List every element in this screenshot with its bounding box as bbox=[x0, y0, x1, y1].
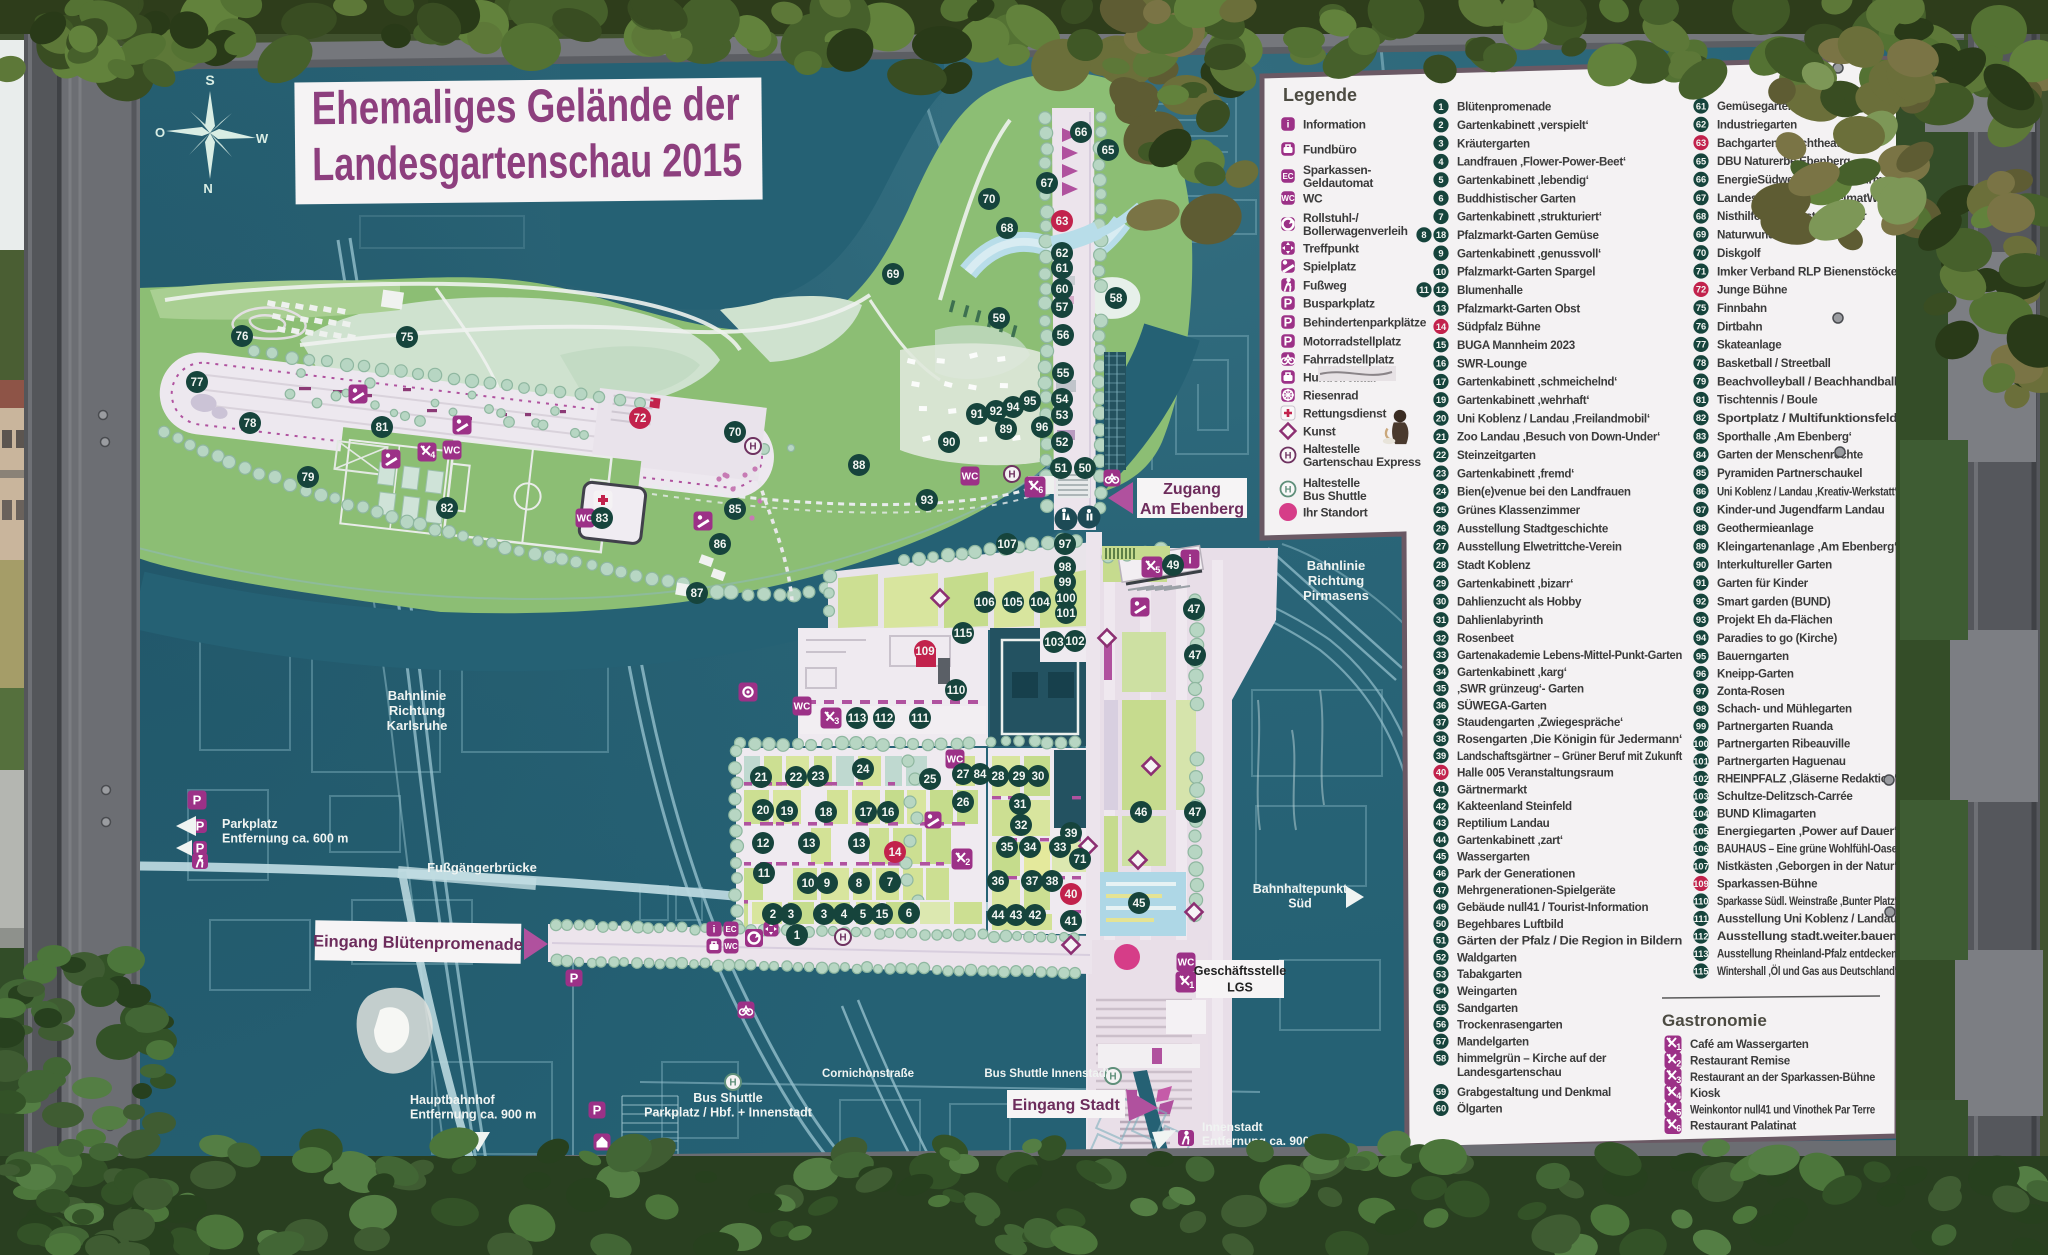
svg-text:97: 97 bbox=[1059, 539, 1072, 551]
svg-text:3: 3 bbox=[788, 909, 794, 921]
svg-text:Bien(e)venue bei den Landfraue: Bien(e)venue bei den Landfrauen bbox=[1457, 486, 1631, 499]
svg-text:Dirtbahn: Dirtbahn bbox=[1717, 320, 1762, 333]
svg-text:Eingang Blütenpromenade: Eingang Blütenpromenade bbox=[313, 932, 523, 954]
svg-text:WC: WC bbox=[724, 942, 738, 951]
svg-text:WC: WC bbox=[1281, 194, 1295, 203]
svg-text:P: P bbox=[593, 1103, 602, 1118]
svg-text:Bauerngarten: Bauerngarten bbox=[1717, 650, 1789, 663]
svg-text:Restaurant an der Sparkassen-B: Restaurant an der Sparkassen-Bühne bbox=[1690, 1071, 1876, 1084]
svg-text:78: 78 bbox=[1696, 358, 1706, 368]
svg-text:3: 3 bbox=[1676, 1075, 1681, 1085]
svg-text:Rollstuhl-/: Rollstuhl-/ bbox=[1303, 211, 1359, 225]
svg-text:89: 89 bbox=[1696, 541, 1706, 551]
svg-text:19: 19 bbox=[781, 806, 794, 818]
svg-text:Schach- und Mühlegarten: Schach- und Mühlegarten bbox=[1717, 703, 1852, 716]
svg-text:47: 47 bbox=[1436, 885, 1446, 895]
svg-text:Gartenkabinett ‚schmeichelnd‘: Gartenkabinett ‚schmeichelnd‘ bbox=[1457, 376, 1617, 389]
svg-text:P: P bbox=[1284, 315, 1293, 330]
svg-text:113: 113 bbox=[848, 713, 867, 725]
svg-text:BAUHAUS – Eine grüne Wohlfühl-: BAUHAUS – Eine grüne Wohlfühl-Oase bbox=[1717, 843, 1898, 856]
svg-text:4: 4 bbox=[1676, 1091, 1681, 1101]
svg-text:Restaurant Remise: Restaurant Remise bbox=[1690, 1055, 1791, 1068]
svg-text:79: 79 bbox=[302, 472, 315, 484]
svg-text:11: 11 bbox=[1419, 285, 1429, 295]
svg-text:Ölgarten: Ölgarten bbox=[1457, 1103, 1502, 1116]
svg-text:28: 28 bbox=[992, 771, 1005, 783]
svg-text:Basketball / Streetball: Basketball / Streetball bbox=[1717, 357, 1831, 370]
svg-text:106: 106 bbox=[1693, 844, 1709, 854]
svg-text:81: 81 bbox=[376, 422, 389, 434]
svg-text:Eingang Stadt: Eingang Stadt bbox=[1012, 1097, 1120, 1114]
svg-text:92: 92 bbox=[990, 406, 1003, 418]
svg-text:58: 58 bbox=[1110, 293, 1123, 305]
svg-text:SÜWEGA-Garten: SÜWEGA-Garten bbox=[1457, 699, 1547, 712]
svg-text:72: 72 bbox=[1696, 285, 1706, 295]
svg-text:40: 40 bbox=[1065, 889, 1078, 901]
svg-text:4: 4 bbox=[430, 450, 435, 460]
svg-text:47: 47 bbox=[1188, 604, 1201, 616]
svg-text:Nistkästen ‚Geborgen in der Na: Nistkästen ‚Geborgen in der Natur‘ bbox=[1717, 860, 1897, 873]
svg-text:6: 6 bbox=[1676, 1124, 1681, 1134]
svg-text:21: 21 bbox=[755, 772, 768, 784]
svg-text:Steinzeitgarten: Steinzeitgarten bbox=[1457, 449, 1536, 462]
svg-text:Sportplatz / Multifunktionsfel: Sportplatz / Multifunktionsfeld bbox=[1717, 412, 1897, 425]
svg-text:Staudengarten ‚Zwiegespräche‘: Staudengarten ‚Zwiegespräche‘ bbox=[1457, 716, 1623, 729]
svg-text:‚SWR grünzeug‘- Garten: ‚SWR grünzeug‘- Garten bbox=[1457, 683, 1584, 696]
svg-text:54: 54 bbox=[1436, 986, 1447, 996]
svg-text:Landesgartenschau: Landesgartenschau bbox=[1457, 1066, 1562, 1079]
svg-text:Mandelgarten: Mandelgarten bbox=[1457, 1035, 1529, 1048]
svg-text:61: 61 bbox=[1056, 263, 1069, 275]
svg-text:i: i bbox=[1188, 552, 1191, 566]
svg-text:17: 17 bbox=[1436, 377, 1446, 387]
svg-text:24: 24 bbox=[857, 764, 870, 776]
svg-text:91: 91 bbox=[971, 409, 984, 421]
svg-text:99: 99 bbox=[1696, 721, 1706, 731]
svg-text:himmelgrün – Kirche auf der: himmelgrün – Kirche auf der bbox=[1457, 1052, 1607, 1065]
svg-text:98: 98 bbox=[1696, 704, 1706, 714]
svg-text:Kinder-und Jugendfarm Landau: Kinder-und Jugendfarm Landau bbox=[1717, 504, 1885, 517]
svg-text:95: 95 bbox=[1696, 651, 1706, 661]
svg-text:88: 88 bbox=[853, 460, 866, 472]
svg-text:44: 44 bbox=[992, 910, 1005, 922]
svg-text:93: 93 bbox=[1696, 615, 1706, 625]
svg-text:Kleingartenanlage ‚Am Ebenberg: Kleingartenanlage ‚Am Ebenberg‘ bbox=[1717, 540, 1897, 553]
svg-text:6: 6 bbox=[1438, 193, 1443, 203]
svg-text:100: 100 bbox=[1693, 739, 1709, 749]
svg-text:103: 103 bbox=[1044, 637, 1063, 649]
svg-text:Weinkontor null41 und Vinothek: Weinkontor null41 und Vinothek Par Terre bbox=[1690, 1103, 1876, 1116]
svg-text:43: 43 bbox=[1010, 910, 1023, 922]
svg-text:41: 41 bbox=[1065, 916, 1078, 928]
svg-text:6: 6 bbox=[1038, 485, 1043, 495]
svg-text:105: 105 bbox=[1003, 597, 1023, 609]
svg-text:Blumenhalle: Blumenhalle bbox=[1457, 284, 1523, 297]
svg-text:83: 83 bbox=[596, 513, 609, 525]
svg-text:H: H bbox=[1008, 470, 1015, 481]
svg-text:96: 96 bbox=[1036, 422, 1049, 434]
svg-text:78: 78 bbox=[244, 418, 257, 430]
svg-text:36: 36 bbox=[1436, 701, 1446, 711]
svg-text:93: 93 bbox=[921, 495, 934, 507]
svg-text:Zoo Landau ‚Besuch von Down-Un: Zoo Landau ‚Besuch von Down-Under‘ bbox=[1457, 431, 1660, 444]
svg-text:13: 13 bbox=[803, 838, 816, 850]
svg-text:11: 11 bbox=[758, 868, 771, 880]
svg-text:1: 1 bbox=[1676, 1042, 1681, 1052]
svg-text:EC: EC bbox=[1282, 172, 1293, 181]
svg-text:BahnlinieRichtungKarlsruhe: BahnlinieRichtungKarlsruhe bbox=[387, 688, 448, 733]
svg-text:Energiegarten ‚Power auf Dauer: Energiegarten ‚Power auf Dauer‘ bbox=[1717, 825, 1897, 838]
svg-text:28: 28 bbox=[1436, 560, 1446, 570]
svg-text:Schultze-Delitzsch-Carrée: Schultze-Delitzsch-Carrée bbox=[1717, 790, 1853, 803]
svg-text:2: 2 bbox=[965, 857, 970, 867]
svg-text:45: 45 bbox=[1436, 852, 1446, 862]
svg-text:Ausstellung stadt.weiter.bauen: Ausstellung stadt.weiter.bauen bbox=[1717, 930, 1897, 943]
svg-text:9: 9 bbox=[1438, 248, 1443, 258]
svg-text:82: 82 bbox=[1696, 413, 1706, 423]
svg-text:Gartenkabinett ‚verspielt‘: Gartenkabinett ‚verspielt‘ bbox=[1457, 119, 1588, 132]
svg-text:BahnlinieRichtungPirmasens: BahnlinieRichtungPirmasens bbox=[1303, 558, 1369, 603]
svg-text:86: 86 bbox=[714, 539, 727, 551]
svg-text:Gebäude null41 / Tourist-Infor: Gebäude null41 / Tourist-Information bbox=[1457, 901, 1648, 914]
svg-text:17: 17 bbox=[860, 807, 873, 819]
svg-text:Blütenpromenade: Blütenpromenade bbox=[1457, 101, 1552, 114]
svg-text:Kräutergarten: Kräutergarten bbox=[1457, 137, 1530, 150]
svg-text:10: 10 bbox=[1436, 267, 1446, 277]
svg-text:66: 66 bbox=[1696, 175, 1706, 185]
svg-text:49: 49 bbox=[1436, 902, 1446, 912]
svg-text:101: 101 bbox=[1056, 608, 1076, 620]
svg-text:70: 70 bbox=[983, 194, 996, 206]
svg-text:Park der Generationen: Park der Generationen bbox=[1457, 867, 1575, 880]
svg-text:Fundbüro: Fundbüro bbox=[1303, 142, 1357, 156]
svg-text:42: 42 bbox=[1436, 801, 1446, 811]
svg-text:109: 109 bbox=[915, 646, 934, 658]
svg-text:Interkultureller Garten: Interkultureller Garten bbox=[1717, 559, 1832, 572]
svg-text:5: 5 bbox=[860, 909, 867, 921]
svg-text:P: P bbox=[196, 841, 205, 856]
svg-text:29: 29 bbox=[1013, 771, 1026, 783]
svg-text:Gartenkabinett ‚lebendig‘: Gartenkabinett ‚lebendig‘ bbox=[1457, 174, 1589, 187]
svg-text:42: 42 bbox=[1029, 910, 1042, 922]
svg-text:89: 89 bbox=[1000, 424, 1013, 436]
svg-text:75: 75 bbox=[1696, 303, 1706, 313]
svg-text:Gastronomie: Gastronomie bbox=[1662, 1011, 1767, 1030]
svg-text:Finnbahn: Finnbahn bbox=[1717, 302, 1767, 315]
svg-text:29: 29 bbox=[1436, 578, 1446, 588]
svg-text:15: 15 bbox=[1436, 340, 1446, 350]
svg-text:22: 22 bbox=[790, 772, 803, 784]
svg-text:5: 5 bbox=[1155, 565, 1160, 575]
svg-text:56: 56 bbox=[1057, 330, 1070, 342]
svg-text:65: 65 bbox=[1696, 156, 1706, 166]
svg-text:63: 63 bbox=[1056, 216, 1069, 228]
svg-text:Garten für Kinder: Garten für Kinder bbox=[1717, 577, 1809, 590]
svg-text:Ihr Standort: Ihr Standort bbox=[1303, 505, 1368, 519]
svg-text:57: 57 bbox=[1056, 302, 1069, 314]
svg-text:18: 18 bbox=[820, 807, 833, 819]
svg-text:Fahrradstellplatz: Fahrradstellplatz bbox=[1303, 352, 1394, 366]
svg-text:Tischtennis / Boule: Tischtennis / Boule bbox=[1717, 394, 1818, 407]
svg-text:34: 34 bbox=[1024, 842, 1037, 854]
svg-text:WC: WC bbox=[444, 446, 461, 457]
svg-text:12: 12 bbox=[1436, 285, 1446, 295]
svg-text:77: 77 bbox=[1696, 340, 1706, 350]
svg-text:Bus Shuttle Innenstadt: Bus Shuttle Innenstadt bbox=[984, 1068, 1109, 1080]
svg-text:14: 14 bbox=[1436, 322, 1447, 332]
svg-text:Ausstellung Elwetrittche-Verei: Ausstellung Elwetrittche-Verein bbox=[1457, 541, 1622, 554]
svg-text:P: P bbox=[196, 819, 205, 834]
svg-text:79: 79 bbox=[1696, 376, 1706, 386]
svg-text:Café am Wassergarten: Café am Wassergarten bbox=[1690, 1038, 1809, 1051]
svg-text:Skateanlage: Skateanlage bbox=[1717, 339, 1782, 352]
svg-text:32: 32 bbox=[1015, 820, 1028, 832]
svg-text:59: 59 bbox=[1436, 1087, 1446, 1097]
svg-text:WC: WC bbox=[1178, 958, 1195, 969]
svg-text:Ehemaliges Gelände der: Ehemaliges Gelände der bbox=[311, 77, 740, 134]
svg-text:7: 7 bbox=[1438, 212, 1443, 222]
svg-text:109: 109 bbox=[1693, 879, 1709, 889]
svg-text:111: 111 bbox=[911, 713, 930, 725]
svg-text:Uni Koblenz / Landau ‚Kreativ-: Uni Koblenz / Landau ‚Kreativ-Werkstatt‘ bbox=[1717, 485, 1897, 498]
svg-text:Treffpunkt: Treffpunkt bbox=[1303, 241, 1359, 255]
svg-text:86: 86 bbox=[1696, 486, 1706, 496]
svg-text:107: 107 bbox=[1693, 861, 1709, 871]
svg-text:Halle 005 Veranstaltungsraum: Halle 005 Veranstaltungsraum bbox=[1457, 767, 1614, 780]
svg-text:113: 113 bbox=[1694, 949, 1709, 959]
svg-text:Cornichonstraße: Cornichonstraße bbox=[822, 1068, 914, 1080]
svg-text:66: 66 bbox=[1075, 127, 1088, 139]
svg-text:Begehbares Luftbild: Begehbares Luftbild bbox=[1457, 918, 1564, 931]
svg-text:41: 41 bbox=[1436, 785, 1446, 795]
svg-text:67: 67 bbox=[1041, 178, 1054, 190]
svg-text:70: 70 bbox=[1696, 248, 1706, 258]
svg-text:i: i bbox=[1287, 120, 1290, 131]
svg-text:Imker Verband RLP Bienenstöcke: Imker Verband RLP Bienenstöcke bbox=[1717, 265, 1898, 278]
svg-text:25: 25 bbox=[1436, 505, 1446, 515]
svg-text:1: 1 bbox=[1189, 980, 1194, 990]
svg-text:107: 107 bbox=[997, 539, 1016, 551]
svg-text:72: 72 bbox=[634, 413, 647, 425]
svg-text:Fußgängerbrücke: Fußgängerbrücke bbox=[427, 860, 537, 875]
svg-text:2: 2 bbox=[1676, 1059, 1681, 1069]
svg-text:47: 47 bbox=[1189, 807, 1202, 819]
svg-text:Zonta-Rosen: Zonta-Rosen bbox=[1717, 685, 1785, 698]
svg-text:27: 27 bbox=[1436, 542, 1446, 552]
svg-text:Kneipp-Garten: Kneipp-Garten bbox=[1717, 668, 1794, 681]
svg-text:46: 46 bbox=[1135, 807, 1148, 819]
svg-text:Rosenbeet: Rosenbeet bbox=[1457, 632, 1514, 645]
svg-text:24: 24 bbox=[1436, 487, 1447, 497]
svg-text:63: 63 bbox=[1696, 138, 1706, 148]
svg-text:33: 33 bbox=[1436, 650, 1446, 660]
svg-text:53: 53 bbox=[1056, 410, 1069, 422]
svg-text:102: 102 bbox=[1065, 636, 1084, 648]
svg-text:WC: WC bbox=[1303, 191, 1323, 205]
svg-text:47: 47 bbox=[1189, 650, 1202, 662]
svg-text:N: N bbox=[203, 181, 212, 196]
svg-text:38: 38 bbox=[1046, 876, 1059, 888]
svg-text:57: 57 bbox=[1436, 1037, 1446, 1047]
svg-text:Legende: Legende bbox=[1283, 85, 1357, 105]
svg-text:Gartenkabinett ‚wehrhaft‘: Gartenkabinett ‚wehrhaft‘ bbox=[1457, 394, 1589, 407]
svg-text:69: 69 bbox=[887, 269, 900, 281]
svg-text:Diskgolf: Diskgolf bbox=[1717, 247, 1761, 260]
svg-text:5: 5 bbox=[1676, 1107, 1681, 1117]
svg-text:32: 32 bbox=[1436, 633, 1446, 643]
svg-text:31: 31 bbox=[1014, 799, 1027, 811]
svg-text:Motorradstellplatz: Motorradstellplatz bbox=[1303, 334, 1401, 348]
svg-text:7: 7 bbox=[887, 877, 893, 889]
svg-text:Behindertenparkplätze: Behindertenparkplätze bbox=[1303, 315, 1427, 329]
svg-text:Gartenkabinett ‚genussvoll‘: Gartenkabinett ‚genussvoll‘ bbox=[1457, 247, 1601, 260]
svg-text:26: 26 bbox=[1436, 523, 1446, 533]
svg-text:SWR-Lounge: SWR-Lounge bbox=[1457, 357, 1528, 370]
svg-text:15: 15 bbox=[876, 909, 889, 921]
svg-text:Sparkassen-: Sparkassen- bbox=[1303, 163, 1371, 177]
svg-text:8: 8 bbox=[856, 878, 863, 890]
svg-text:101: 101 bbox=[1693, 756, 1709, 766]
svg-text:23: 23 bbox=[812, 771, 825, 783]
svg-text:36: 36 bbox=[992, 876, 1005, 888]
svg-text:88: 88 bbox=[1696, 523, 1706, 533]
svg-text:31: 31 bbox=[1436, 615, 1446, 625]
svg-text:WC: WC bbox=[794, 702, 811, 713]
svg-text:Smart garden (BUND): Smart garden (BUND) bbox=[1717, 595, 1831, 608]
svg-text:27: 27 bbox=[957, 769, 970, 781]
svg-text:52: 52 bbox=[1056, 437, 1069, 449]
svg-text:104: 104 bbox=[1030, 597, 1050, 609]
svg-text:16: 16 bbox=[882, 807, 895, 819]
svg-text:Information: Information bbox=[1303, 117, 1366, 131]
svg-text:Wintershall ‚Öl und Gas aus De: Wintershall ‚Öl und Gas aus Deutschland‘ bbox=[1717, 965, 1897, 978]
svg-text:Geothermieanlage: Geothermieanlage bbox=[1717, 522, 1814, 535]
svg-text:Rettungsdienst: Rettungsdienst bbox=[1303, 406, 1386, 420]
svg-text:30: 30 bbox=[1436, 597, 1446, 607]
svg-text:43: 43 bbox=[1436, 818, 1446, 828]
svg-text:Sporthalle ‚Am Ebenberg‘: Sporthalle ‚Am Ebenberg‘ bbox=[1717, 430, 1852, 443]
svg-text:Bollerwagenverleih: Bollerwagenverleih bbox=[1303, 224, 1408, 238]
svg-text:75: 75 bbox=[401, 332, 414, 344]
svg-text:Busparkplatz: Busparkplatz bbox=[1303, 296, 1375, 310]
svg-text:39: 39 bbox=[1065, 828, 1078, 840]
svg-text:61: 61 bbox=[1696, 101, 1706, 111]
svg-text:Pyramiden Partnerschaukel: Pyramiden Partnerschaukel bbox=[1717, 467, 1862, 480]
svg-text:2: 2 bbox=[1438, 120, 1443, 130]
svg-text:23: 23 bbox=[1436, 468, 1446, 478]
svg-text:Landesgartenschau 2015: Landesgartenschau 2015 bbox=[312, 133, 743, 190]
svg-text:WC: WC bbox=[577, 514, 594, 525]
svg-text:WC: WC bbox=[962, 472, 979, 483]
svg-text:Sparkassen-Bühne: Sparkassen-Bühne bbox=[1717, 878, 1818, 891]
svg-text:Dahlienzucht als Hobby: Dahlienzucht als Hobby bbox=[1457, 596, 1582, 609]
svg-text:Gartenkabinett ‚karg‘: Gartenkabinett ‚karg‘ bbox=[1457, 666, 1567, 679]
svg-text:Dahlienlabyrinth: Dahlienlabyrinth bbox=[1457, 614, 1543, 627]
svg-text:71: 71 bbox=[1696, 266, 1706, 276]
svg-text:Südpfalz Bühne: Südpfalz Bühne bbox=[1457, 321, 1541, 334]
svg-text:71: 71 bbox=[1074, 854, 1087, 866]
svg-text:115: 115 bbox=[1694, 966, 1709, 976]
svg-text:H: H bbox=[1285, 484, 1292, 495]
svg-text:68: 68 bbox=[1001, 223, 1014, 235]
svg-text:Waldgarten: Waldgarten bbox=[1457, 951, 1517, 964]
svg-text:102: 102 bbox=[1693, 774, 1709, 784]
svg-text:92: 92 bbox=[1696, 596, 1706, 606]
svg-text:96: 96 bbox=[1696, 669, 1706, 679]
svg-text:46: 46 bbox=[1436, 869, 1446, 879]
svg-text:38: 38 bbox=[1436, 734, 1446, 744]
svg-text:Gartenkabinett ‚bizarr‘: Gartenkabinett ‚bizarr‘ bbox=[1457, 577, 1573, 590]
svg-text:3: 3 bbox=[1438, 138, 1443, 148]
svg-text:P: P bbox=[1284, 334, 1293, 349]
svg-text:76: 76 bbox=[1696, 321, 1706, 331]
svg-text:18: 18 bbox=[1436, 230, 1446, 240]
svg-text:110: 110 bbox=[947, 685, 966, 697]
svg-text:39: 39 bbox=[1436, 751, 1446, 761]
svg-text:Mehrgenerationen-Spielgeräte: Mehrgenerationen-Spielgeräte bbox=[1457, 884, 1616, 897]
svg-text:104: 104 bbox=[1693, 809, 1709, 819]
svg-text:20: 20 bbox=[757, 805, 770, 817]
svg-text:94: 94 bbox=[1007, 402, 1020, 414]
svg-text:51: 51 bbox=[1436, 936, 1446, 946]
svg-text:12: 12 bbox=[757, 838, 770, 850]
svg-text:Gartenschau Express: Gartenschau Express bbox=[1303, 455, 1421, 469]
svg-text:22: 22 bbox=[1436, 450, 1446, 460]
svg-text:5: 5 bbox=[1438, 175, 1443, 185]
svg-text:4: 4 bbox=[1438, 157, 1444, 167]
svg-text:105: 105 bbox=[1693, 826, 1709, 836]
svg-text:Partnergarten Ruanda: Partnergarten Ruanda bbox=[1717, 720, 1834, 733]
svg-text:56: 56 bbox=[1436, 1020, 1446, 1030]
svg-text:RHEINPFALZ ‚Gläserne Redaktion: RHEINPFALZ ‚Gläserne Redaktion‘ bbox=[1717, 773, 1897, 786]
svg-text:90: 90 bbox=[1696, 560, 1706, 570]
svg-text:97: 97 bbox=[1696, 686, 1706, 696]
svg-text:87: 87 bbox=[1696, 505, 1706, 515]
svg-text:i: i bbox=[713, 925, 716, 936]
svg-text:Pfalzmarkt-Garten Gemüse: Pfalzmarkt-Garten Gemüse bbox=[1457, 229, 1599, 242]
svg-text:45: 45 bbox=[1133, 898, 1146, 910]
svg-text:Kakteenland Steinfeld: Kakteenland Steinfeld bbox=[1457, 800, 1572, 813]
svg-text:Gärten der Pfalz / Die Region: Gärten der Pfalz / Die Region in Bildern bbox=[1457, 935, 1682, 948]
svg-text:Gartenkabinett ‚zart‘: Gartenkabinett ‚zart‘ bbox=[1457, 834, 1563, 847]
svg-text:H: H bbox=[729, 1078, 736, 1089]
svg-text:1: 1 bbox=[1438, 102, 1443, 112]
svg-text:4: 4 bbox=[841, 909, 848, 921]
svg-text:Ausstellung Stadtgeschichte: Ausstellung Stadtgeschichte bbox=[1457, 522, 1609, 535]
svg-text:34: 34 bbox=[1436, 667, 1447, 677]
svg-text:59: 59 bbox=[993, 313, 1006, 325]
svg-text:14: 14 bbox=[889, 847, 902, 859]
svg-text:10: 10 bbox=[802, 878, 815, 890]
svg-text:8: 8 bbox=[1421, 230, 1426, 240]
svg-text:90: 90 bbox=[943, 437, 956, 449]
svg-text:95: 95 bbox=[1024, 396, 1037, 408]
svg-text:BUND Klimagarten: BUND Klimagarten bbox=[1717, 808, 1816, 821]
svg-text:16: 16 bbox=[1436, 358, 1446, 368]
svg-text:Rosengarten ‚Die Königin für J: Rosengarten ‚Die Königin für Jedermann‘ bbox=[1457, 733, 1682, 746]
svg-text:20: 20 bbox=[1436, 413, 1446, 423]
svg-text:13: 13 bbox=[1436, 303, 1446, 313]
svg-text:106: 106 bbox=[975, 597, 994, 609]
svg-text:49: 49 bbox=[1167, 560, 1180, 572]
svg-text:52: 52 bbox=[1436, 953, 1446, 963]
svg-text:Industriegarten: Industriegarten bbox=[1717, 119, 1797, 132]
svg-text:Gartenkabinett ‚strukturiert‘: Gartenkabinett ‚strukturiert‘ bbox=[1457, 211, 1602, 224]
svg-text:112: 112 bbox=[875, 713, 894, 725]
svg-text:Reptilium Landau: Reptilium Landau bbox=[1457, 817, 1550, 830]
svg-text:19: 19 bbox=[1436, 395, 1446, 405]
svg-text:84: 84 bbox=[1696, 450, 1707, 460]
